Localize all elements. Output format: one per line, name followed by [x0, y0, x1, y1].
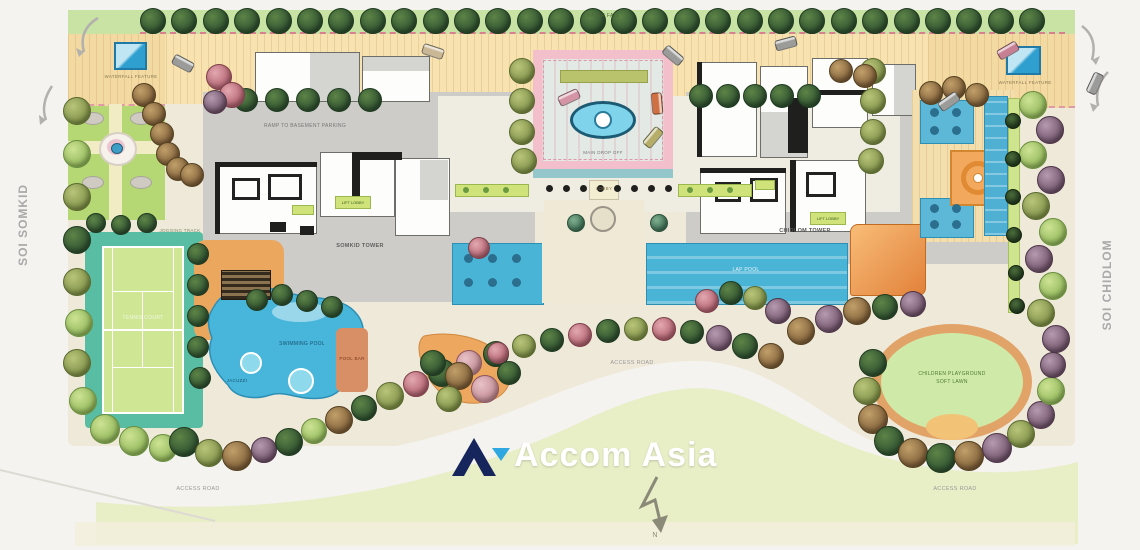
waterfall-feature-right-label: WATERFALL FEATURE	[980, 80, 1070, 85]
planter-dot	[687, 187, 693, 193]
court-green-bar	[560, 70, 648, 83]
tree	[898, 438, 928, 468]
tree	[271, 284, 293, 306]
tree	[497, 361, 521, 385]
access-road-label-left: ACCESS ROAD	[168, 486, 228, 492]
tree	[705, 8, 731, 34]
road-label-soi-chidlom: SOI CHIDLOM	[1101, 235, 1115, 335]
tree	[568, 323, 592, 347]
tennis-service-line	[112, 367, 174, 368]
tree	[187, 336, 209, 358]
lift-lobby-right-label: LIFT LOBBY	[817, 216, 840, 221]
waterfall-feature-left-label: WATERFALL FEATURE	[86, 74, 176, 79]
tree	[1036, 116, 1064, 144]
tree	[548, 8, 574, 34]
tree	[296, 88, 320, 112]
tree	[689, 84, 713, 108]
planter-dot	[930, 220, 939, 229]
tree	[468, 237, 490, 259]
planter-dot	[483, 187, 489, 193]
tree	[234, 8, 260, 34]
tree	[119, 426, 149, 456]
column-dot	[563, 185, 570, 192]
tree	[926, 443, 956, 473]
planter-dot	[727, 187, 733, 193]
tree	[275, 428, 303, 456]
planter-dot	[463, 187, 469, 193]
tree	[321, 296, 343, 318]
tennis-label: TENNIS COURT	[112, 316, 174, 322]
tree	[436, 386, 462, 412]
site-plan: LIFT LOBBY LIFT LOBBY	[0, 0, 1140, 550]
road-label-soi-somkid: SOI SOMKID	[17, 175, 31, 275]
tree	[187, 274, 209, 296]
column-dot	[631, 185, 638, 192]
tree	[471, 375, 499, 403]
tree	[859, 349, 887, 377]
column-dot	[665, 185, 672, 192]
tree	[203, 8, 229, 34]
tree	[1042, 325, 1070, 353]
lift-lobby-right: LIFT LOBBY	[810, 212, 846, 225]
tree	[180, 163, 204, 187]
planter-dot	[488, 278, 497, 287]
tree	[187, 243, 209, 265]
tree	[360, 8, 386, 34]
lift-lobby-left-label: LIFT LOBBY	[342, 200, 365, 205]
planter-dot	[952, 126, 961, 135]
walk-fountain	[590, 206, 616, 232]
tree	[770, 84, 794, 108]
tree	[831, 8, 857, 34]
tree	[423, 8, 449, 34]
tree	[716, 84, 740, 108]
pool-label: SWIMMING POOL	[262, 342, 342, 348]
access-road-label-center: ACCESS ROAD	[602, 360, 662, 366]
tree	[988, 8, 1014, 34]
tree	[894, 8, 920, 34]
ramp-label: RAMP TO BASEMENT PARKING	[250, 124, 360, 130]
waterfall-strip-label: WATER FALL	[570, 14, 636, 20]
tree	[1019, 8, 1045, 34]
tree	[1039, 218, 1067, 246]
tree	[63, 140, 91, 168]
tree	[680, 320, 704, 344]
waterfall-feature-left	[114, 42, 147, 70]
tree	[1006, 227, 1022, 243]
tree	[862, 8, 888, 34]
somkid-tower-label: SOMKID TOWER	[320, 243, 400, 249]
planter-dot	[512, 278, 521, 287]
tree	[351, 395, 377, 421]
orange-pavilion	[850, 224, 926, 296]
tree	[454, 8, 480, 34]
tree	[509, 88, 535, 114]
tree	[1025, 245, 1053, 273]
planter-dot	[488, 254, 497, 263]
car-icon	[651, 92, 664, 115]
tree	[860, 88, 886, 114]
tree	[509, 119, 535, 145]
tree	[965, 83, 989, 107]
tree	[925, 8, 951, 34]
pool-bar-label: POOL BAR	[334, 356, 370, 361]
jogging-label: JOGGING TRACK	[150, 228, 210, 233]
tree	[695, 289, 719, 313]
tree	[203, 90, 227, 114]
lobby-label: LOBBY	[584, 186, 624, 191]
tree	[829, 59, 853, 83]
garden-fountain-water	[111, 143, 123, 154]
tree	[1019, 141, 1047, 169]
tree	[719, 281, 743, 305]
lap-strip-pool	[984, 96, 1008, 236]
jacuzzi-pool	[240, 352, 262, 374]
tree	[872, 294, 898, 320]
tree	[63, 183, 91, 211]
access-road-label-right: ACCESS ROAD	[925, 486, 985, 492]
tree	[265, 88, 289, 112]
planter-dot	[952, 220, 961, 229]
tree	[325, 406, 353, 434]
tennis-net-line	[102, 329, 184, 331]
tree	[743, 286, 767, 310]
tree	[1039, 272, 1067, 300]
tree	[652, 317, 676, 341]
tree	[1037, 377, 1065, 405]
planter-dot	[707, 187, 713, 193]
playground-label-2: SOFT LAWN	[917, 380, 987, 386]
tree	[954, 441, 984, 471]
tree	[737, 8, 763, 34]
tree	[189, 367, 211, 389]
tree	[195, 439, 223, 467]
column-dot	[546, 185, 553, 192]
tree	[297, 8, 323, 34]
planter-dot	[512, 254, 521, 263]
accom-asia-logo-icon	[446, 432, 516, 480]
tree	[222, 441, 252, 471]
tree	[63, 268, 91, 296]
tree	[296, 290, 318, 312]
drop-off-label: MAIN DROP OFF	[563, 150, 643, 155]
tree	[758, 343, 784, 369]
tree	[301, 418, 327, 444]
tree	[509, 58, 535, 84]
tree	[815, 305, 843, 333]
planter-dot	[930, 108, 939, 117]
tree	[63, 97, 91, 125]
spa-court-center	[973, 173, 983, 183]
tree	[251, 437, 277, 463]
planter-dot	[930, 126, 939, 135]
tree	[674, 8, 700, 34]
tree	[732, 333, 758, 359]
planter-dot	[503, 187, 509, 193]
tree	[540, 328, 564, 352]
tree	[511, 148, 537, 174]
tree	[63, 226, 91, 254]
tree	[787, 317, 815, 345]
tree	[706, 325, 732, 351]
tree	[743, 84, 767, 108]
tree	[376, 382, 404, 410]
tree	[86, 213, 106, 233]
lift-lobby-left: LIFT LOBBY	[335, 196, 371, 209]
tree	[63, 349, 91, 377]
tree	[858, 148, 884, 174]
tree	[65, 309, 93, 337]
chidlom-tower-label: CHIDLOM TOWER	[765, 228, 845, 234]
tennis-service-line	[112, 291, 174, 292]
playground-label-1: CHILDREN PLAYGROUND	[897, 372, 1007, 378]
tree	[843, 297, 871, 325]
lap-pool-label: LAP POOL	[716, 268, 776, 274]
planter-strip	[755, 180, 775, 190]
tree	[1027, 401, 1055, 429]
tree	[90, 414, 120, 444]
tree	[1040, 352, 1066, 378]
tree	[765, 298, 791, 324]
tree	[624, 317, 648, 341]
tree	[797, 84, 821, 108]
column-dot	[648, 185, 655, 192]
tree	[403, 371, 429, 397]
tree	[768, 8, 794, 34]
tree	[1005, 189, 1021, 205]
planter-dot	[952, 204, 961, 213]
watermark-text: Accom Asia	[514, 436, 717, 475]
tree	[391, 8, 417, 34]
tree	[487, 342, 509, 364]
tree	[420, 350, 446, 376]
tree	[111, 215, 131, 235]
jacuzzi-label: JACUZZI	[212, 378, 262, 383]
tree	[596, 319, 620, 343]
court-water-trim	[533, 169, 673, 178]
planter-dot	[930, 204, 939, 213]
tree	[860, 119, 886, 145]
tree	[1027, 299, 1055, 327]
tree	[1019, 91, 1047, 119]
eye-fountain-center	[594, 111, 612, 129]
tree	[1037, 166, 1065, 194]
tree	[567, 214, 585, 232]
planter-dot	[464, 278, 473, 287]
tree	[580, 8, 606, 34]
tree	[611, 8, 637, 34]
tree	[650, 214, 668, 232]
tree	[140, 8, 166, 34]
tree	[853, 377, 881, 405]
tree	[69, 387, 97, 415]
tree	[187, 305, 209, 327]
tree	[1022, 192, 1050, 220]
playground-sandpit	[926, 414, 978, 440]
tree	[1008, 265, 1024, 281]
tree	[1005, 113, 1021, 129]
tree	[512, 334, 536, 358]
tree	[1009, 298, 1025, 314]
tree	[900, 291, 926, 317]
planter-strip	[292, 205, 314, 215]
north-label: N	[645, 532, 665, 540]
tree	[266, 8, 292, 34]
tennis-center-line	[142, 291, 143, 368]
tree	[853, 64, 877, 88]
kids-pool	[288, 368, 314, 394]
tree	[1005, 151, 1021, 167]
tree	[327, 88, 351, 112]
tree	[246, 289, 268, 311]
planter-dot	[952, 108, 961, 117]
tree	[358, 88, 382, 112]
tree	[517, 8, 543, 34]
south-pale-strip	[75, 522, 1075, 546]
